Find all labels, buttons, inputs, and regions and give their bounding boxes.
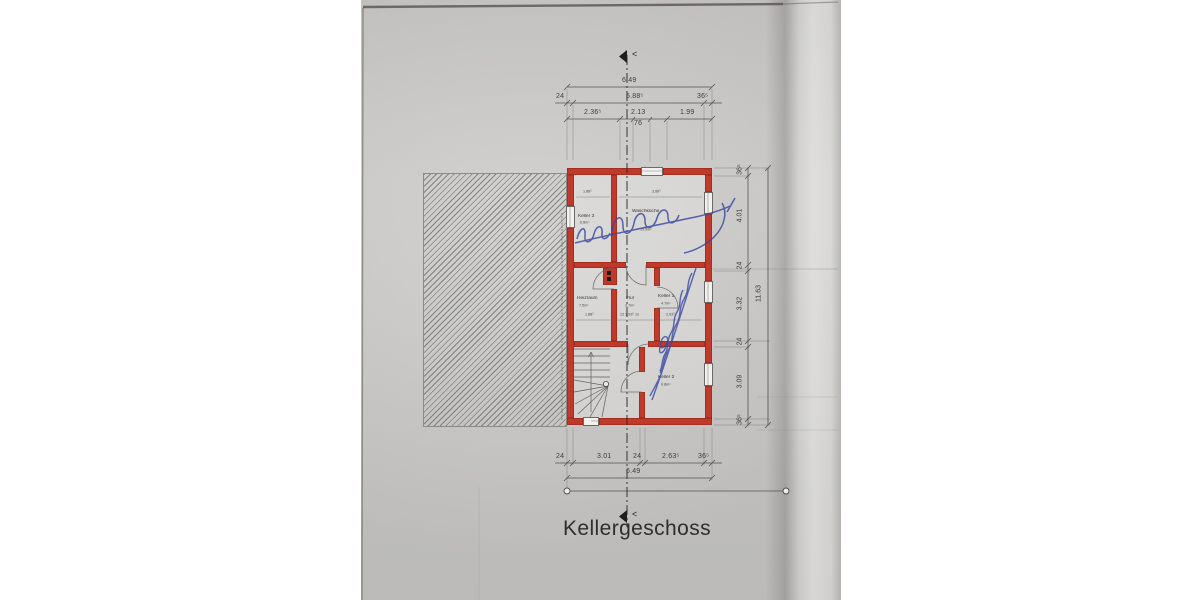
room-label-heizraum: Heizraum [577, 296, 598, 301]
dim-top: 2.13 [631, 109, 645, 116]
room-label-keller1: Keller 1 [658, 294, 674, 299]
photo-of-floor-plan: 6.49 24 5.88⁵ 36⁵ 2.36⁵ 2.13 1.99 76 36⁵… [0, 0, 1200, 600]
wall-right-b [705, 214, 712, 281]
dim-top: 5.88⁵ [626, 93, 644, 100]
wall-left-a [567, 175, 574, 206]
window-right-keller2 [704, 363, 713, 386]
dim-overall-bottom: 6.49 [626, 468, 640, 475]
plan-title: Kellergeschoss [563, 517, 711, 541]
chimney-flue-icon [607, 271, 611, 275]
dim-bottom: 2.63⁵ [662, 453, 680, 460]
dim-overall-top: 6.49 [622, 77, 636, 84]
wall-top-right [663, 168, 712, 175]
window-bottom [583, 417, 599, 426]
existing-building-hatch [423, 173, 567, 427]
wall-right-d [705, 386, 712, 418]
room-area-keller3: 6.8m² [580, 221, 590, 225]
section-arrow-icon: < [632, 49, 637, 59]
wall-mid-upper-left [574, 262, 626, 268]
window-left [566, 206, 575, 228]
dim-top: 2.36⁵ [584, 109, 602, 116]
wall-bottom-right [599, 418, 712, 425]
chimney-flue-icon [607, 277, 611, 281]
room-label-flur: Flur [626, 296, 634, 301]
wall-mid-lower-left [574, 341, 628, 347]
dim-bottom: 24 [556, 453, 564, 460]
dim-bottom: 3.01 [597, 453, 611, 460]
dim-bottom: 36⁵ [698, 453, 709, 460]
room-area-heizraum: 7.5m² [579, 304, 589, 308]
wall-top-left [567, 168, 641, 175]
wall-bottom-left [567, 418, 583, 425]
wall-mid-lower-right [648, 341, 705, 347]
wall-flur-keller1-a [654, 268, 660, 286]
room-label-waschkueche: Waschküche [632, 209, 659, 214]
dim-right: 36⁵ [737, 407, 744, 433]
window-right-waschkueche [704, 192, 713, 214]
dim-right: 4.01 [737, 203, 744, 229]
wall-right-c [705, 303, 712, 363]
wall-stair-keller2-b [639, 392, 645, 418]
dim-overall-right: 11.63 [756, 281, 763, 307]
wall-stair-keller2-a [639, 347, 645, 372]
dim-right: 36⁵ [737, 157, 744, 183]
room-dim-keller1: 2.63⁵ [666, 313, 675, 317]
wall-left-b [567, 228, 574, 418]
dim-door-width: 76 [634, 120, 642, 127]
dim-top: 24 [556, 93, 564, 100]
dim-bottom: 24 [633, 453, 641, 460]
dim-right: 24 [737, 329, 744, 355]
dim-top: 1.99 [680, 109, 694, 116]
room-area-waschkueche: 15.5m² [640, 228, 652, 232]
wall-keller3-waschkueche [611, 175, 617, 262]
room-label-keller2: Keller 2 [658, 375, 674, 380]
room-area-flur: 3.7m² [625, 304, 635, 308]
dim-right: 3.09 [737, 369, 744, 395]
room-area-keller2: 9.8m² [661, 383, 671, 387]
room-dim-waschkueche: 3.88⁵ [652, 190, 661, 194]
room-dim-flur: 12 1.93⁵ 12 [620, 313, 639, 317]
window-top [641, 167, 663, 176]
wall-heizraum-flur [611, 289, 617, 341]
room-dim-heizraum: 1.88⁵ [585, 313, 594, 317]
room-dim-keller3: 1.88⁵ [583, 190, 592, 194]
window-right-keller1 [704, 281, 713, 303]
room-area-keller1: 4.7m² [661, 302, 671, 306]
dim-right: 24 [737, 253, 744, 279]
wall-flur-keller1-b [654, 308, 660, 341]
dim-top: 36⁵ [697, 93, 708, 100]
dim-right: 3.32 [737, 291, 744, 317]
wall-right-a [705, 175, 712, 192]
room-label-keller3: Keller 3 [578, 214, 594, 219]
